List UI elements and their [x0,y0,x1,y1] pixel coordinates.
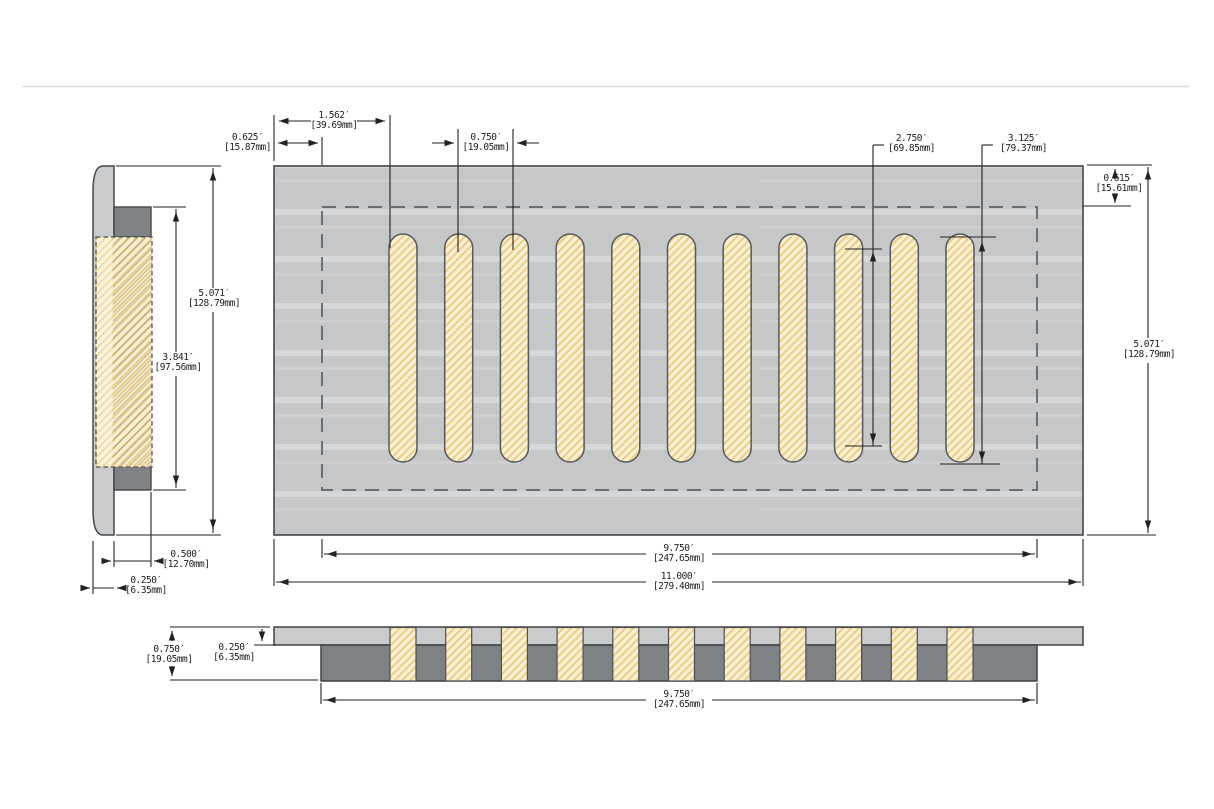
slot [779,234,807,462]
body-flange-top [114,207,151,237]
slot-band [724,628,750,682]
dim-side-opening-label: 3.841′[97.56mm] [155,353,202,373]
drawing-geometry [0,0,1214,809]
slot-band [446,628,472,682]
dim-left-margin-label: 0.625′[15.87mm] [224,133,271,153]
slot [612,234,640,462]
dim-slot-offset-label: 1.562′[39.69mm] [311,111,358,131]
slot [723,234,751,462]
top-plan-view [274,166,1083,535]
slot [556,234,584,462]
dim-side-plate-thickness-label: 0.250′[6.35mm] [125,576,167,596]
dim-plate-width-label: 11.000′[279.40mm] [653,572,705,592]
dim-section-height-label: 0.750′[19.05mm] [146,645,193,665]
slot [389,234,417,462]
dim-opening-width-top-label: 9.750′[247.65mm] [653,544,705,564]
slot-band [501,628,527,682]
slot-band [557,628,583,682]
slot-band [780,628,806,682]
dim-side-depth-label: 0.500′[12.70mm] [163,550,210,570]
slot [890,234,918,462]
slot-band [836,628,862,682]
dim-slot-overall-label: 3.125′[79.37mm] [1000,134,1047,154]
slot-band [669,628,695,682]
slot-band [390,628,416,682]
dim-plate-height-right-label: 5.071′[128.79mm] [1123,340,1175,360]
slot [946,234,974,462]
slot [668,234,696,462]
dim-top-margin-label: 0.615′[15.61mm] [1096,174,1143,194]
dim-side-height-label: 5.071′[128.79mm] [188,289,240,309]
dim-slot-straight-label: 2.750′[69.85mm] [888,134,935,154]
technical-drawing-canvas: 1.562′[39.69mm] 0.625′[15.87mm] 0.750′[1… [0,0,1214,809]
slot-band [891,628,917,682]
dim-section-plate-thickness-label: 0.250′[6.35mm] [213,643,255,663]
slot-band [613,628,639,682]
dim-slot-pitch-label: 0.750′[19.05mm] [463,133,510,153]
slot [835,234,863,462]
bottom-section-view [274,627,1083,681]
side-profile-view [93,166,152,535]
slot-band [947,628,973,682]
slot [500,234,528,462]
slot [445,234,473,462]
dim-section-opening-label: 9.750′[247.65mm] [653,690,705,710]
